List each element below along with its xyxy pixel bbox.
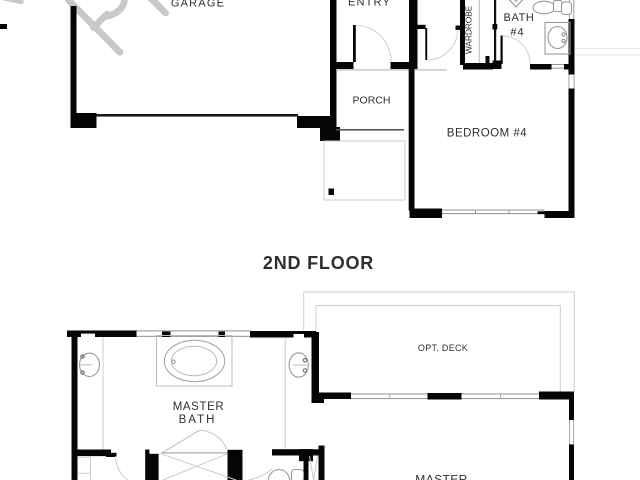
svg-text:BATH: BATH <box>504 12 535 24</box>
svg-text:BEDROOM #4: BEDROOM #4 <box>447 128 528 140</box>
svg-text:MASTER: MASTER <box>415 473 467 480</box>
svg-text:ENTRY: ENTRY <box>348 0 391 9</box>
svg-text:OPT. DECK: OPT. DECK <box>418 343 468 353</box>
svg-text:GARAGE: GARAGE <box>171 0 225 10</box>
svg-text:BATH: BATH <box>179 414 217 426</box>
svg-text:PORCH: PORCH <box>353 95 391 107</box>
svg-text:MASTER: MASTER <box>173 401 225 413</box>
svg-text:2ND FLOOR: 2ND FLOOR <box>263 253 374 273</box>
svg-text:#4: #4 <box>510 27 524 39</box>
svg-text:WARDROBE: WARDROBE <box>464 5 474 54</box>
